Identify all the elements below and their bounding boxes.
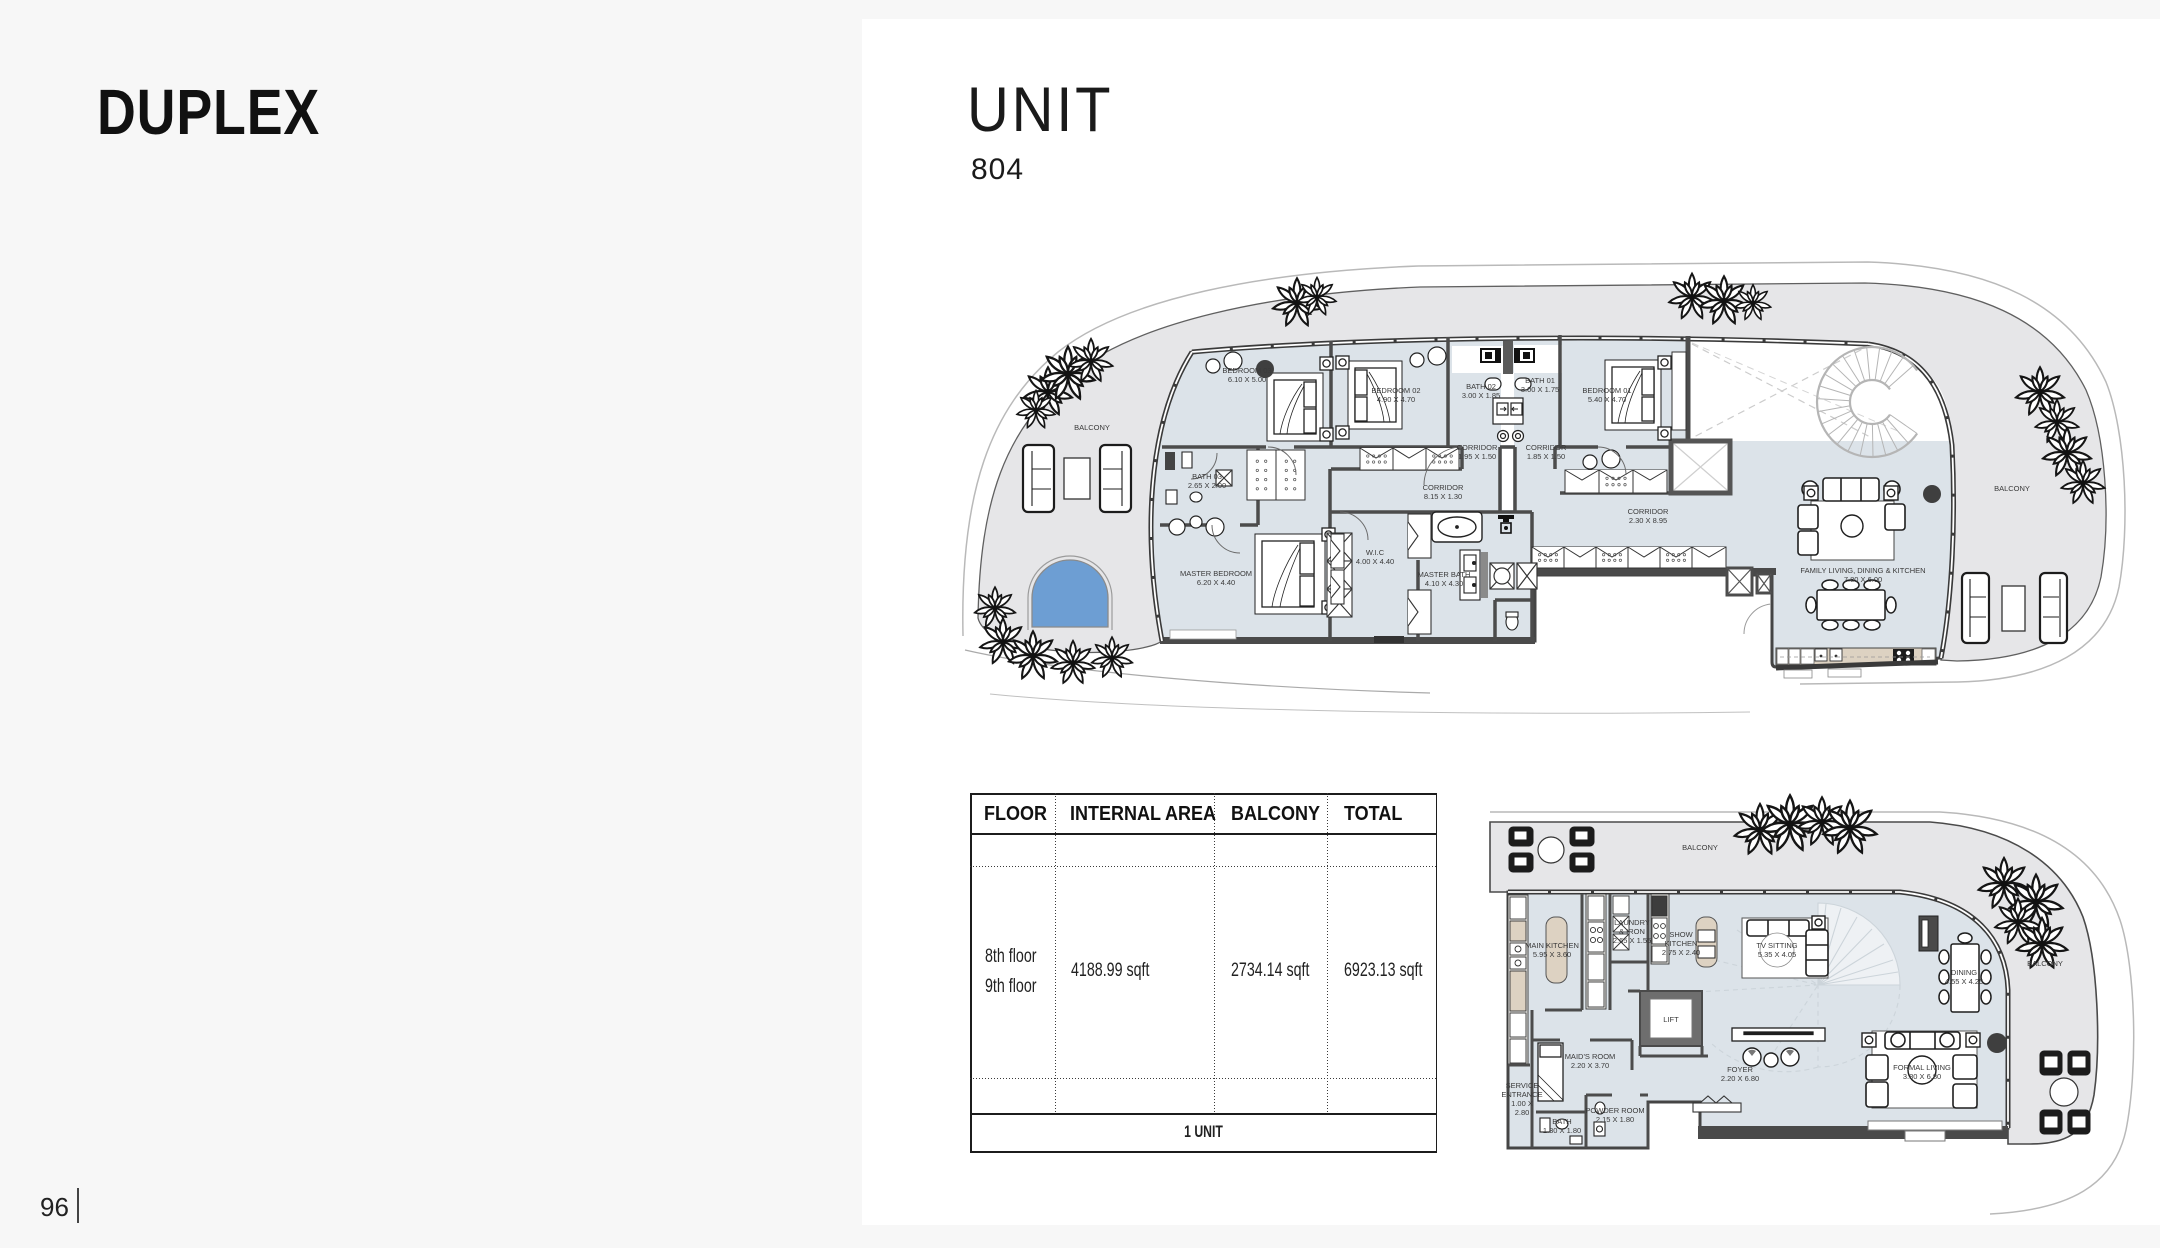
svg-text:BALCONY: BALCONY bbox=[1682, 843, 1718, 852]
svg-text:4.00 X 4.40: 4.00 X 4.40 bbox=[1356, 557, 1394, 566]
svg-text:1.30 X 1.80: 1.30 X 1.80 bbox=[1543, 1126, 1581, 1135]
svg-text:MAIN KITCHEN: MAIN KITCHEN bbox=[1525, 941, 1579, 950]
svg-text:KITCHEN: KITCHEN bbox=[1665, 939, 1698, 948]
svg-text:SHOW: SHOW bbox=[1669, 930, 1693, 939]
svg-text:FORMAL LIVING: FORMAL LIVING bbox=[1893, 1063, 1951, 1072]
svg-text:7.80 X 6.00: 7.80 X 6.00 bbox=[1844, 575, 1882, 584]
svg-text:BATH 03: BATH 03 bbox=[1192, 472, 1222, 481]
svg-text:CORRIDOR: CORRIDOR bbox=[1526, 443, 1567, 452]
svg-text:2.65 X 2.00: 2.65 X 2.00 bbox=[1188, 481, 1226, 490]
svg-text:& IRON: & IRON bbox=[1619, 927, 1645, 936]
svg-text:2.20 X 3.70: 2.20 X 3.70 bbox=[1571, 1061, 1609, 1070]
svg-text:4.90 X 4.70: 4.90 X 4.70 bbox=[1377, 395, 1415, 404]
svg-text:BALCONY: BALCONY bbox=[2027, 959, 2063, 968]
svg-text:BEDROOM 01: BEDROOM 01 bbox=[1582, 386, 1631, 395]
svg-text:2.65 X 1.55: 2.65 X 1.55 bbox=[1613, 936, 1651, 945]
svg-text:6.10 X 5.00: 6.10 X 5.00 bbox=[1228, 375, 1266, 384]
svg-text:5.95 X 3.60: 5.95 X 3.60 bbox=[1533, 950, 1571, 959]
svg-text:3.80 X 6.80: 3.80 X 6.80 bbox=[1903, 1072, 1941, 1081]
svg-text:MASTER BATH: MASTER BATH bbox=[1418, 570, 1471, 579]
svg-text:LAUNDRY: LAUNDRY bbox=[1614, 918, 1650, 927]
svg-text:2.80: 2.80 bbox=[1515, 1108, 1530, 1117]
svg-text:POWDER ROOM: POWDER ROOM bbox=[1585, 1106, 1644, 1115]
svg-text:3.00 X 1.75: 3.00 X 1.75 bbox=[1521, 385, 1559, 394]
svg-text:BEDROOM 02: BEDROOM 02 bbox=[1371, 386, 1420, 395]
svg-text:6.20 X 4.40: 6.20 X 4.40 bbox=[1197, 578, 1235, 587]
svg-text:BALCONY: BALCONY bbox=[1994, 484, 2030, 493]
svg-text:BATH 01: BATH 01 bbox=[1525, 376, 1555, 385]
svg-text:MASTER BEDROOM: MASTER BEDROOM bbox=[1180, 569, 1252, 578]
svg-text:ENTRANCE: ENTRANCE bbox=[1501, 1090, 1542, 1099]
svg-text:BATH: BATH bbox=[1552, 1117, 1571, 1126]
svg-text:5.35 X 4.05: 5.35 X 4.05 bbox=[1758, 950, 1796, 959]
svg-text:CORRIDOR: CORRIDOR bbox=[1628, 507, 1669, 516]
svg-text:5.40 X 4.70: 5.40 X 4.70 bbox=[1588, 395, 1626, 404]
svg-text:3.00 X 1.85: 3.00 X 1.85 bbox=[1462, 391, 1500, 400]
svg-text:2.15 X 1.80: 2.15 X 1.80 bbox=[1596, 1115, 1634, 1124]
svg-text:1.95 X 1.50: 1.95 X 1.50 bbox=[1458, 452, 1496, 461]
svg-text:LIFT: LIFT bbox=[1663, 1015, 1679, 1024]
svg-text:CORRIDOR: CORRIDOR bbox=[1457, 443, 1498, 452]
svg-text:FAMILY LIVING, DINING & KITCHE: FAMILY LIVING, DINING & KITCHEN bbox=[1800, 566, 1925, 575]
svg-text:MAID'S ROOM: MAID'S ROOM bbox=[1565, 1052, 1616, 1061]
svg-text:TV SITTING: TV SITTING bbox=[1756, 941, 1797, 950]
svg-text:4.55 X 4.25: 4.55 X 4.25 bbox=[1945, 977, 1983, 986]
svg-text:4.10 X 4.30: 4.10 X 4.30 bbox=[1425, 579, 1463, 588]
svg-text:2.75 X 2.40: 2.75 X 2.40 bbox=[1662, 948, 1700, 957]
svg-text:SERVICE: SERVICE bbox=[1506, 1081, 1539, 1090]
svg-text:CORRIDOR: CORRIDOR bbox=[1423, 483, 1464, 492]
svg-text:W.I.C: W.I.C bbox=[1366, 548, 1385, 557]
svg-text:2.20 X 6.80: 2.20 X 6.80 bbox=[1721, 1074, 1759, 1083]
svg-text:BALCONY: BALCONY bbox=[1074, 423, 1110, 432]
svg-text:DINING: DINING bbox=[1951, 968, 1977, 977]
svg-text:FOYER: FOYER bbox=[1727, 1065, 1753, 1074]
svg-text:2.30 X 8.95: 2.30 X 8.95 bbox=[1629, 516, 1667, 525]
svg-text:1.85 X 1.50: 1.85 X 1.50 bbox=[1527, 452, 1565, 461]
svg-text:1.00 X: 1.00 X bbox=[1511, 1099, 1533, 1108]
svg-text:8.15 X 1.30: 8.15 X 1.30 bbox=[1424, 492, 1462, 501]
svg-text:BATH 02: BATH 02 bbox=[1466, 382, 1496, 391]
svg-text:BEDROOM 03: BEDROOM 03 bbox=[1222, 366, 1271, 375]
